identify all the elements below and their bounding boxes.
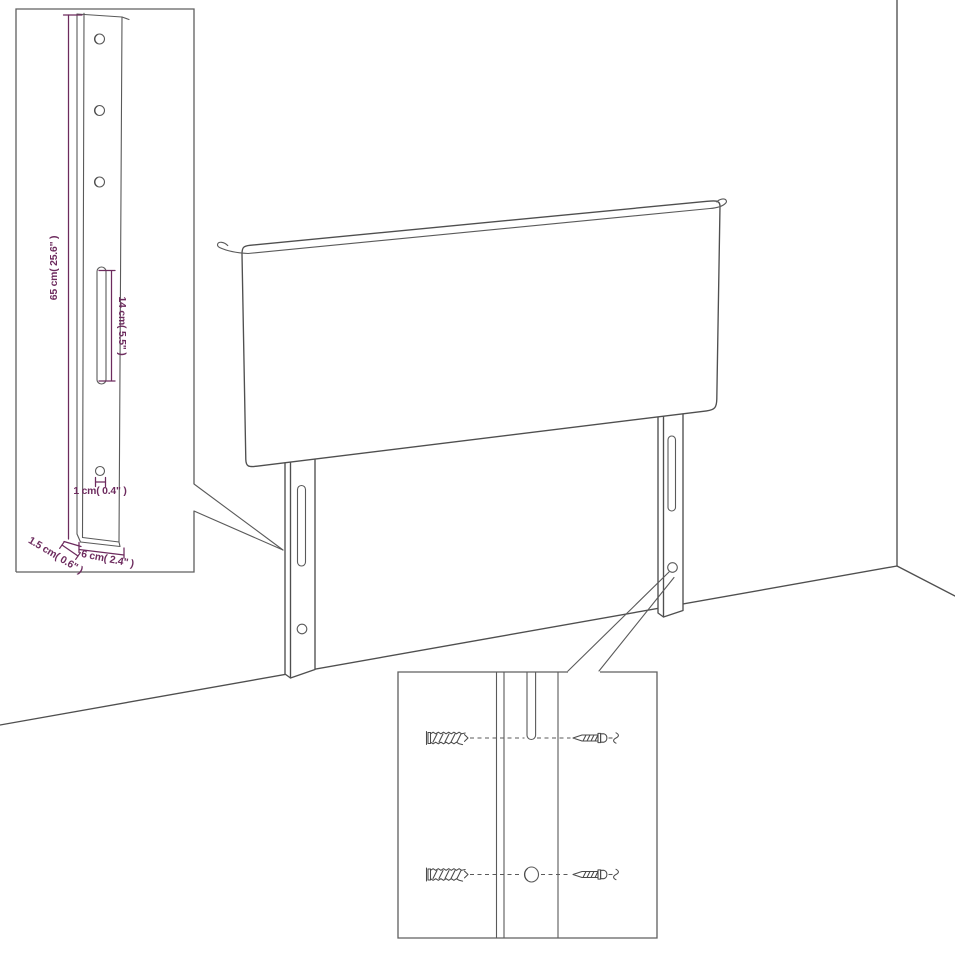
mounting-row-slot: [427, 732, 619, 745]
dimension-label-slot-length: 14 cm( 5.5" ): [116, 297, 127, 356]
diagram-canvas: 65 cm( 25.6" ) 14 cm( 5.5" ) 1 cm( 0.4" …: [0, 0, 955, 955]
headboard-panel: [218, 199, 727, 467]
floor-wall-line-right: [897, 566, 955, 596]
dimension-label-depth: 1.5 cm( 0.6" ): [26, 535, 84, 576]
wall-plug-icon: [427, 868, 469, 881]
break-mark-icon: [614, 869, 619, 879]
dimension-label-hole-diameter: 1 cm( 0.4" ): [73, 486, 126, 497]
floor-wall-line-left: [0, 566, 897, 725]
wall-plug-icon: [427, 732, 469, 745]
callout-left-leg: [194, 484, 283, 550]
screw-icon: [573, 733, 607, 742]
dimension-label-width: 6 cm( 2.4" ): [80, 549, 134, 570]
headboard-dimension-diagram: 65 cm( 25.6" ) 14 cm( 5.5" ) 1 cm( 0.4" …: [0, 0, 955, 955]
inset-leg-slot: [97, 267, 106, 384]
mounting-row-hole: [427, 867, 619, 882]
break-mark-icon: [614, 733, 619, 743]
inset-mounting-detail: [398, 672, 657, 938]
inset-leg-side-view: 65 cm( 25.6" ) 14 cm( 5.5" ) 1 cm( 0.4" …: [16, 9, 194, 576]
screw-icon: [573, 870, 607, 879]
inset-leg-small-hole: [96, 467, 105, 476]
right-leg: [658, 400, 683, 617]
inset-mounting-leg: [497, 673, 559, 938]
left-leg: [285, 450, 315, 678]
dimension-label-height: 65 cm( 25.6" ): [49, 236, 60, 301]
mounting-slot: [527, 673, 536, 740]
inset-dimensions: 65 cm( 25.6" ) 14 cm( 5.5" ) 1 cm( 0.4" …: [26, 15, 135, 576]
inset-leg-drawing: [77, 13, 129, 546]
